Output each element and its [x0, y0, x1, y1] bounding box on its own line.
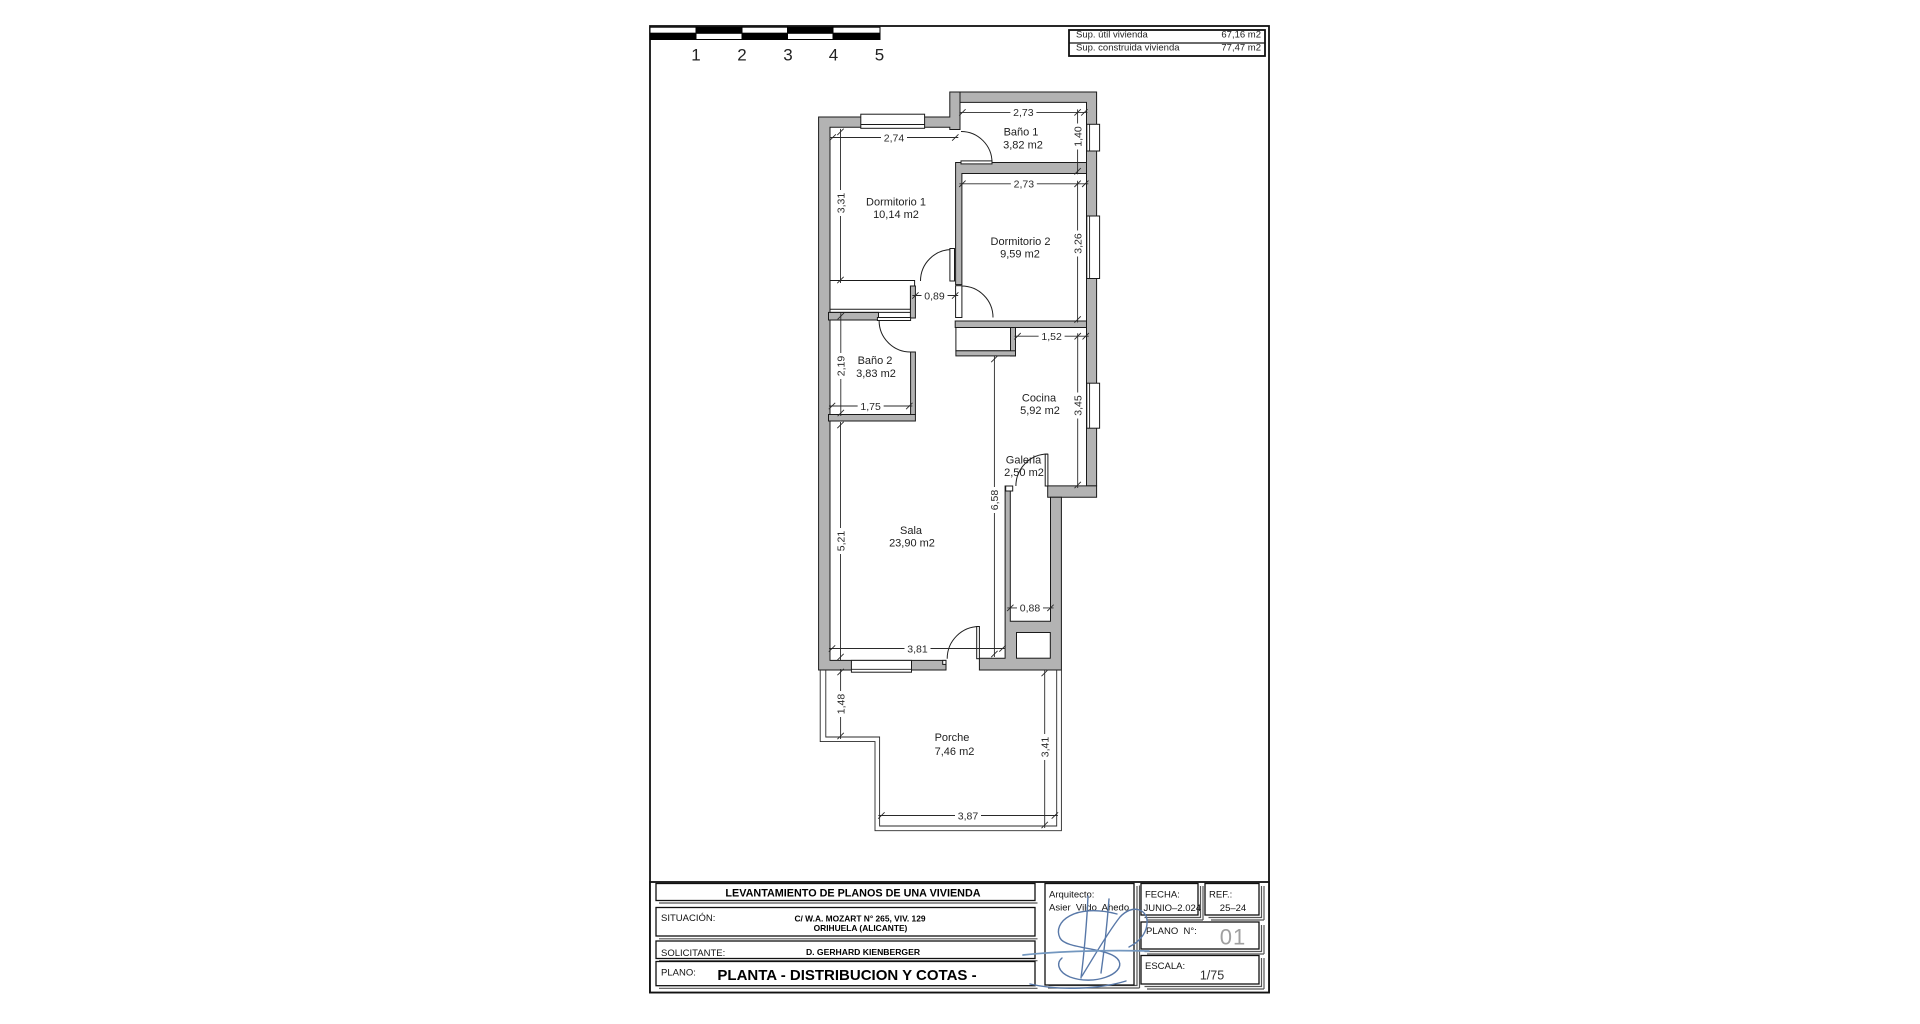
svg-text:Baño 2: Baño 2 [858, 355, 893, 367]
svg-text:77,47 m2: 77,47 m2 [1221, 43, 1261, 54]
svg-text:PLANTA - DISTRIBUCION Y COTAS: PLANTA - DISTRIBUCION Y COTAS - [717, 967, 976, 984]
svg-text:3,81: 3,81 [907, 643, 928, 655]
svg-text:Sala: Sala [900, 525, 923, 537]
svg-text:ORIHUELA (ALICANTE): ORIHUELA (ALICANTE) [814, 923, 908, 933]
svg-text:1,48: 1,48 [835, 694, 847, 715]
svg-text:2,50 m2: 2,50 m2 [1004, 467, 1044, 479]
svg-text:Cocina: Cocina [1022, 393, 1057, 405]
svg-text:5,92 m2: 5,92 m2 [1020, 405, 1060, 417]
svg-text:C/ W.A. MOZART N° 265, VIV. 12: C/ W.A. MOZART N° 265, VIV. 129 [794, 913, 925, 923]
svg-text:25–24: 25–24 [1220, 903, 1246, 914]
svg-text:ESCALA:: ESCALA: [1145, 961, 1185, 972]
svg-text:01: 01 [1220, 925, 1246, 950]
svg-text:SITUACIÓN:: SITUACIÓN: [661, 913, 715, 924]
svg-text:3,45: 3,45 [1073, 395, 1085, 416]
svg-text:3,41: 3,41 [1040, 737, 1052, 758]
svg-text:Baño 1: Baño 1 [1004, 127, 1039, 139]
svg-text:Sup. útil vivienda: Sup. útil vivienda [1076, 30, 1149, 41]
svg-text:3: 3 [783, 46, 792, 65]
svg-text:JUNIO–2.024: JUNIO–2.024 [1144, 903, 1202, 914]
svg-text:3,31: 3,31 [835, 193, 847, 214]
svg-text:PLANO:: PLANO: [661, 968, 696, 979]
svg-text:2: 2 [737, 46, 746, 65]
svg-text:9,59 m2: 9,59 m2 [1000, 249, 1040, 261]
svg-text:Dormitorio 2: Dormitorio 2 [991, 236, 1051, 248]
svg-text:10,14 m2: 10,14 m2 [873, 209, 919, 221]
svg-text:2,74: 2,74 [884, 132, 905, 144]
svg-text:Sup. construida vivienda: Sup. construida vivienda [1076, 43, 1180, 54]
svg-text:6,58: 6,58 [989, 490, 1001, 511]
svg-text:D. GERHARD KIENBERGER: D. GERHARD KIENBERGER [806, 947, 921, 957]
svg-text:Porche: Porche [935, 732, 970, 744]
svg-text:1/75: 1/75 [1200, 969, 1224, 983]
svg-text:1: 1 [691, 46, 700, 65]
svg-text:3,26: 3,26 [1072, 233, 1084, 254]
svg-text:67,16 m2: 67,16 m2 [1221, 30, 1261, 41]
svg-text:1,52: 1,52 [1041, 331, 1062, 343]
svg-text:7,46 m2: 7,46 m2 [935, 746, 975, 758]
svg-text:5: 5 [875, 46, 884, 65]
svg-text:FECHA:: FECHA: [1145, 890, 1180, 901]
svg-text:23,90 m2: 23,90 m2 [889, 537, 935, 549]
svg-text:LEVANTAMIENTO DE PLANOS DE UNA: LEVANTAMIENTO DE PLANOS DE UNA VIVIENDA [725, 887, 980, 899]
svg-text:3,83 m2: 3,83 m2 [856, 368, 896, 380]
svg-text:2,73: 2,73 [1014, 179, 1035, 191]
svg-text:2,19: 2,19 [836, 356, 848, 377]
svg-text:SOLICITANTE:: SOLICITANTE: [661, 948, 725, 959]
svg-text:3,87: 3,87 [958, 810, 979, 822]
svg-text:2,73: 2,73 [1013, 107, 1034, 119]
svg-text:Galeria: Galeria [1006, 454, 1042, 466]
svg-text:0,89: 0,89 [924, 290, 945, 302]
svg-text:4: 4 [829, 46, 838, 65]
svg-text:3,82 m2: 3,82 m2 [1003, 139, 1043, 151]
svg-text:0,88: 0,88 [1020, 603, 1041, 615]
svg-text:REF.:: REF.: [1209, 890, 1232, 901]
svg-text:Asier Vildo Ahedo: Asier Vildo Ahedo [1049, 903, 1129, 914]
svg-text:1,40: 1,40 [1072, 126, 1084, 147]
svg-text:PLANO N°:: PLANO N°: [1146, 926, 1197, 937]
svg-text:5,21: 5,21 [835, 531, 847, 552]
svg-text:1,75: 1,75 [860, 401, 881, 413]
svg-text:Dormitorio 1: Dormitorio 1 [866, 196, 926, 208]
